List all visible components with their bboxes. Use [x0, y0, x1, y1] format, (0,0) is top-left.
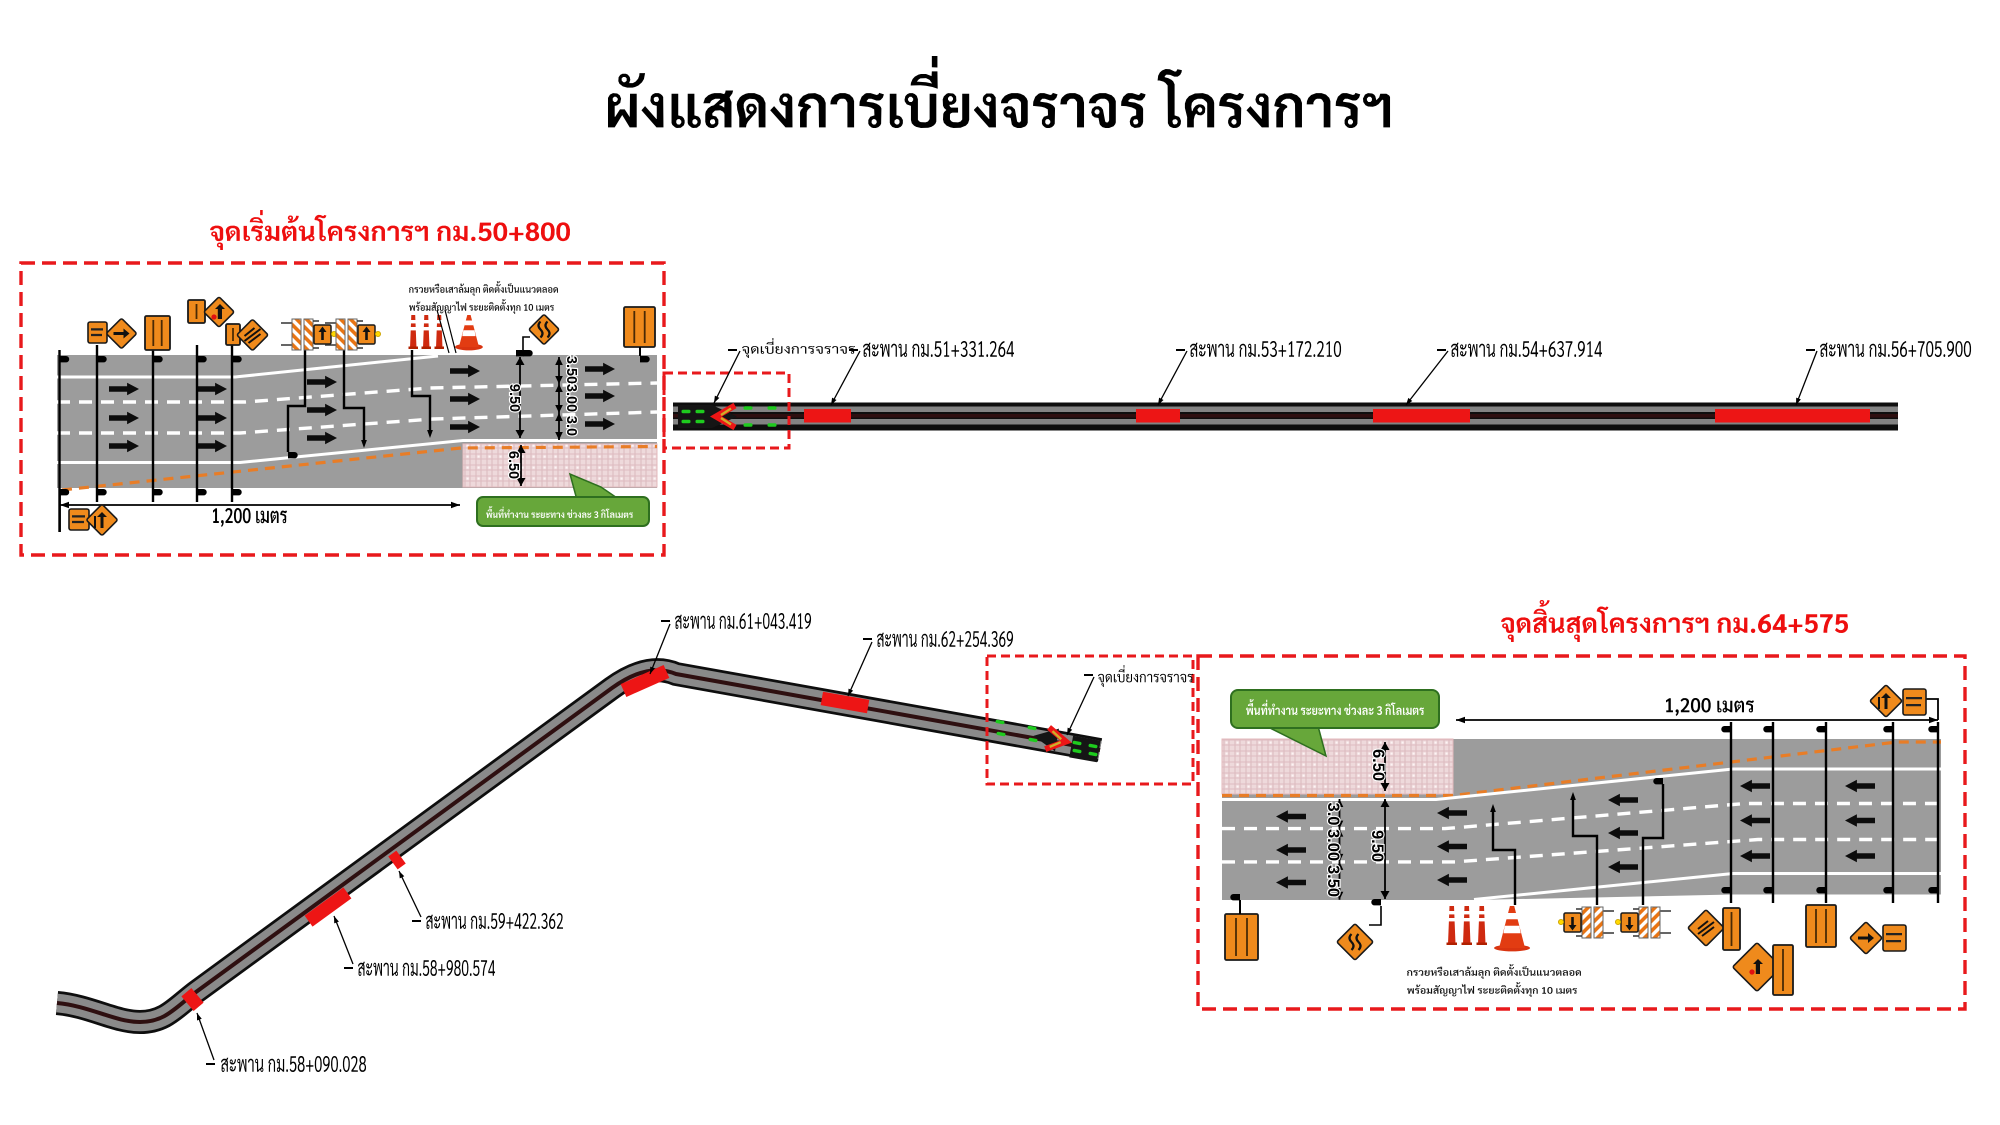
svg-text:3.00: 3.00	[1324, 829, 1342, 861]
svg-text:3.0: 3.0	[1324, 803, 1342, 826]
svg-text:3.50: 3.50	[1324, 865, 1342, 897]
svg-text:3.50: 3.50	[563, 356, 579, 384]
svg-text:3.0: 3.0	[563, 416, 579, 436]
svg-text:6.50: 6.50	[505, 451, 521, 479]
svg-text:3.00: 3.00	[563, 384, 579, 412]
svg-text:9.50: 9.50	[506, 384, 522, 412]
svg-text:6.50: 6.50	[1369, 749, 1387, 781]
svg-text:9.50: 9.50	[1368, 830, 1386, 862]
